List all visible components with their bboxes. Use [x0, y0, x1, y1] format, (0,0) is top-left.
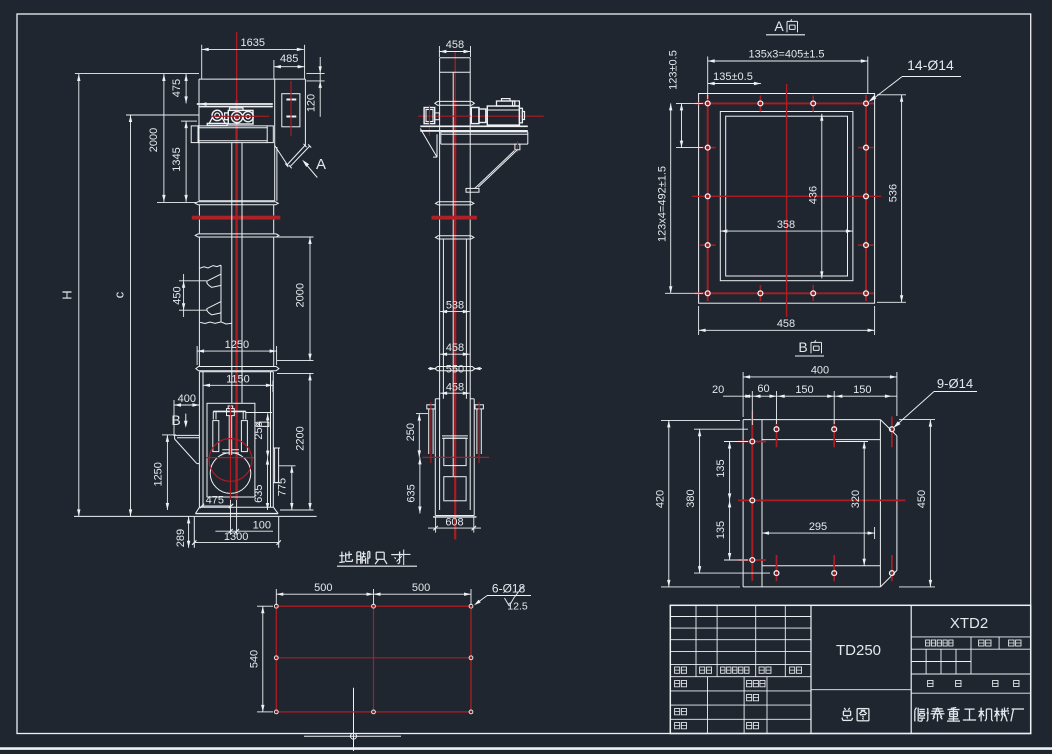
svg-text:380: 380: [685, 489, 697, 507]
svg-text:1345: 1345: [171, 147, 183, 171]
svg-text:538: 538: [446, 299, 464, 311]
svg-text:635: 635: [405, 484, 417, 502]
svg-text:420: 420: [654, 490, 666, 508]
svg-text:2000: 2000: [148, 128, 160, 152]
svg-text:c: c: [112, 291, 127, 298]
svg-text:485: 485: [280, 53, 298, 65]
svg-text:458: 458: [446, 39, 464, 51]
svg-text:295: 295: [809, 521, 827, 533]
svg-text:135±0.5: 135±0.5: [713, 71, 753, 83]
svg-text:12.5: 12.5: [507, 601, 528, 613]
svg-text:135: 135: [715, 459, 727, 477]
svg-text:1150: 1150: [226, 373, 250, 385]
svg-text:B: B: [171, 412, 180, 428]
svg-text:358: 358: [777, 219, 795, 231]
svg-text:458: 458: [777, 318, 795, 330]
svg-text:120: 120: [306, 94, 318, 112]
svg-text:450: 450: [916, 490, 928, 508]
svg-text:150: 150: [795, 384, 813, 396]
svg-text:608: 608: [445, 516, 463, 528]
svg-text:9-Ø14: 9-Ø14: [937, 376, 973, 391]
svg-text:20: 20: [712, 384, 724, 396]
svg-text:14-Ø14: 14-Ø14: [907, 57, 954, 73]
svg-text:H: H: [60, 290, 75, 299]
svg-text:135: 135: [715, 521, 727, 539]
svg-text:635: 635: [253, 485, 265, 503]
svg-text:XTD2: XTD2: [950, 615, 988, 632]
svg-text:123x4=492±1.5: 123x4=492±1.5: [656, 166, 668, 242]
svg-text:550: 550: [446, 364, 464, 376]
svg-text:100: 100: [253, 519, 271, 531]
svg-text:B: B: [798, 339, 807, 355]
svg-text:458: 458: [446, 381, 464, 393]
svg-text:436: 436: [808, 186, 820, 204]
svg-text:540: 540: [248, 650, 260, 668]
svg-text:289: 289: [175, 529, 187, 547]
svg-text:500: 500: [314, 582, 332, 594]
svg-text:450: 450: [171, 286, 183, 304]
svg-text:536: 536: [887, 184, 899, 202]
svg-text:2000: 2000: [295, 283, 307, 307]
svg-text:775: 775: [276, 478, 288, 496]
svg-text:1250: 1250: [152, 462, 164, 486]
svg-text:250: 250: [405, 423, 417, 441]
svg-text:123±0.5: 123±0.5: [667, 50, 679, 90]
svg-text:400: 400: [811, 365, 829, 377]
svg-text:60: 60: [757, 383, 769, 395]
svg-text:1250: 1250: [225, 339, 249, 351]
svg-text:A: A: [774, 18, 784, 34]
svg-text:135x3=405±1.5: 135x3=405±1.5: [748, 49, 824, 61]
svg-text:500: 500: [412, 582, 430, 594]
svg-text:320: 320: [850, 490, 862, 508]
svg-text:475: 475: [206, 494, 224, 506]
svg-text:458: 458: [446, 342, 464, 354]
svg-text:2200: 2200: [295, 426, 307, 450]
svg-text:1635: 1635: [241, 37, 265, 49]
svg-text:250: 250: [253, 421, 265, 439]
svg-text:150: 150: [853, 384, 871, 396]
svg-text:475: 475: [171, 79, 183, 97]
svg-text:400: 400: [178, 393, 196, 405]
svg-text:1300: 1300: [224, 531, 248, 543]
svg-text:A: A: [316, 156, 326, 173]
svg-text:TD250: TD250: [836, 642, 881, 659]
